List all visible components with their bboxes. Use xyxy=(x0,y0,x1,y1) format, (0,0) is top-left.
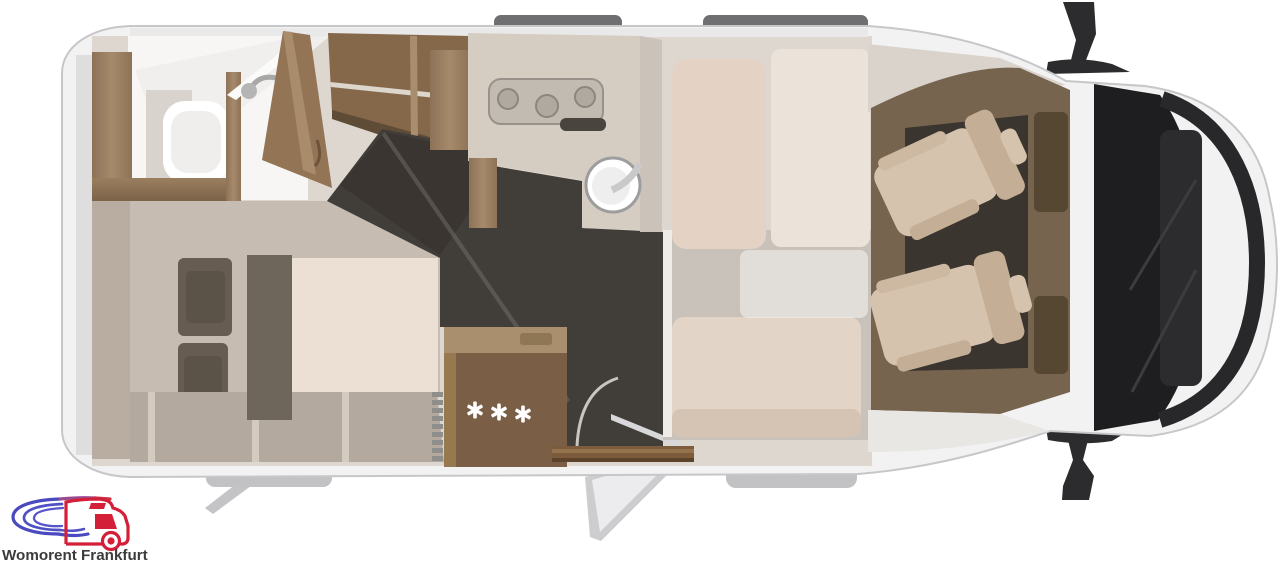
svg-text:Womorent Frankfurt: Womorent Frankfurt xyxy=(2,547,148,561)
